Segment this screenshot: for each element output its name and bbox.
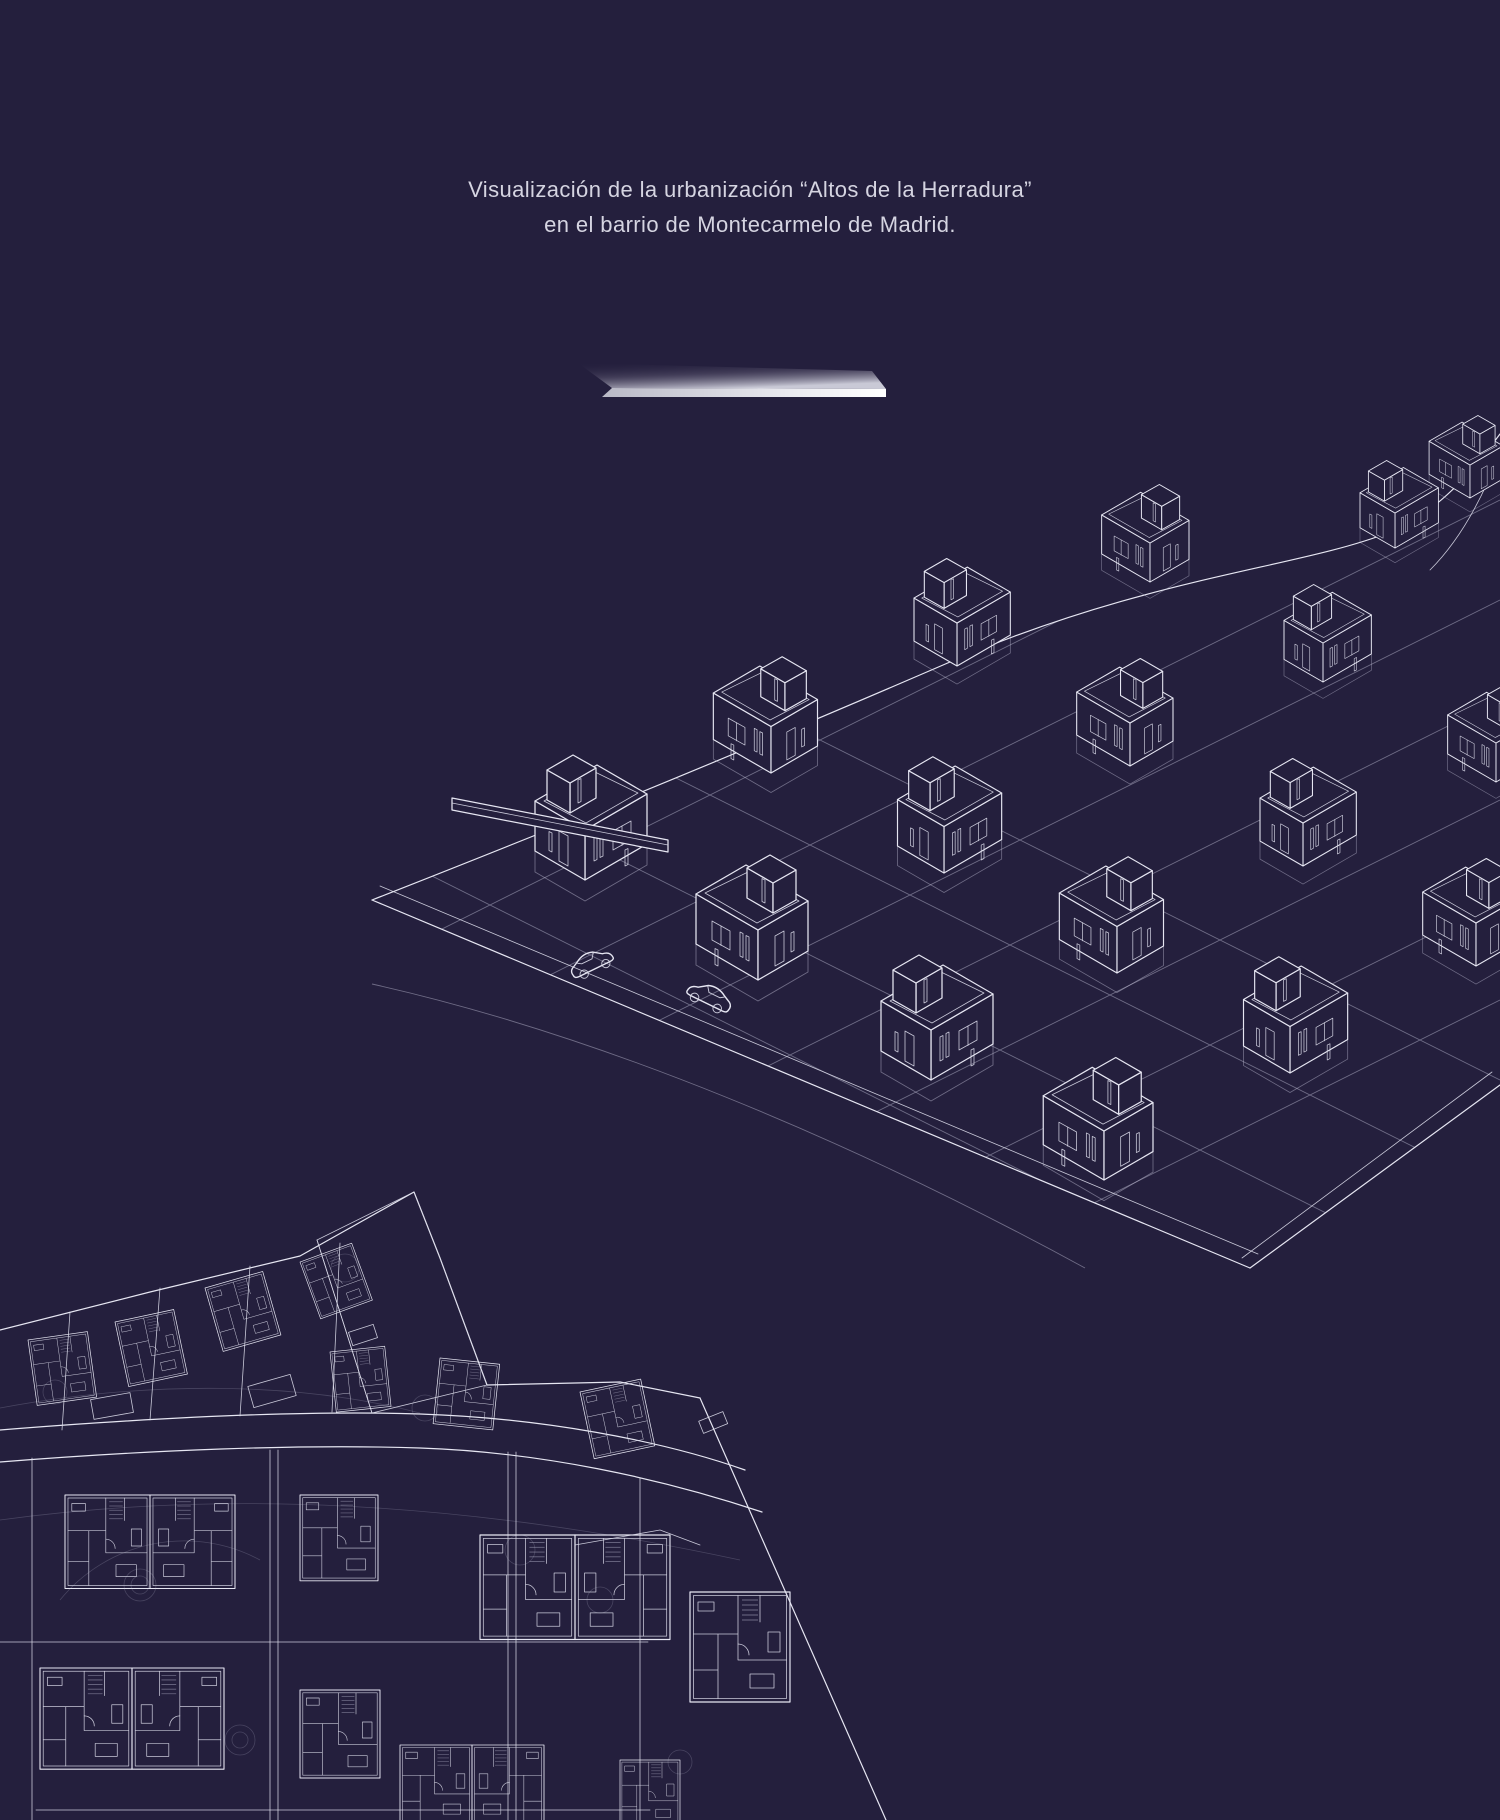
- portfolio-section: Visualización de la urbanización “Altos …: [0, 0, 1500, 1820]
- floor-plan-unit: [40, 1668, 224, 1769]
- floor-plan-unit: [480, 1535, 670, 1640]
- wireframe-cars: [567, 944, 735, 1017]
- plan-contours-and-trees: [0, 1254, 740, 1774]
- wireframe-houses: [535, 416, 1500, 1201]
- plan-lower-band: [0, 1398, 886, 1820]
- floor-plan-unit: [65, 1495, 235, 1589]
- caption-line-2: en el barrio de Montecarmelo de Madrid.: [0, 207, 1500, 242]
- project-caption: Visualización de la urbanización “Altos …: [0, 172, 1500, 242]
- floor-plan-unit: [400, 1745, 544, 1820]
- caption-line-1: Visualización de la urbanización “Altos …: [0, 172, 1500, 207]
- plan-upper-band: [0, 1192, 745, 1470]
- site-plan-blueprint-illustration: [0, 1150, 960, 1820]
